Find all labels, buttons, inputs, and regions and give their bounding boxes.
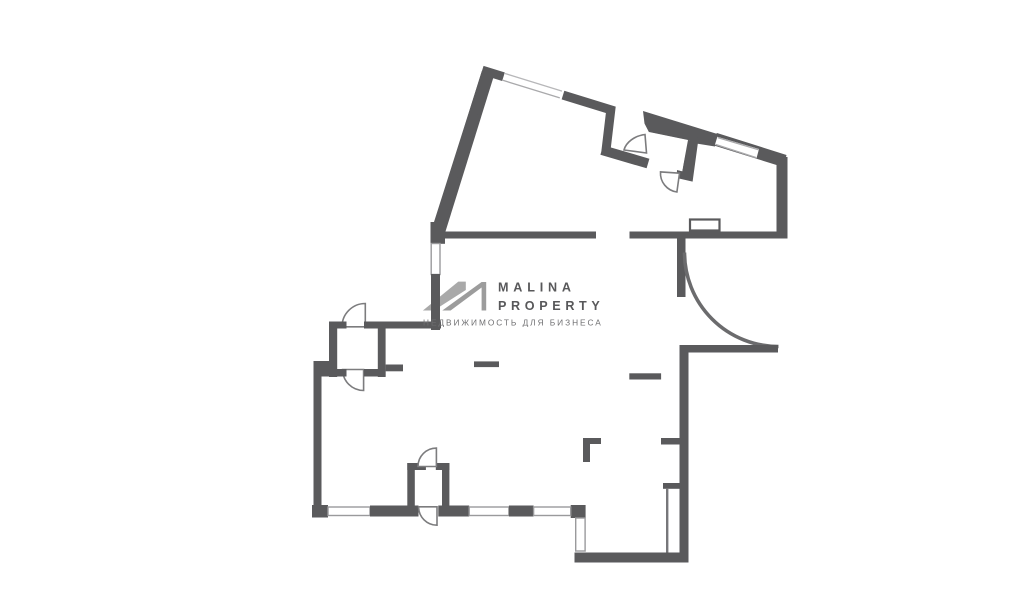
svg-text:MALINA: MALINA [498,281,576,295]
svg-text:НЕДВИЖИМОСТЬ ДЛЯ БИЗНЕСА: НЕДВИЖИМОСТЬ ДЛЯ БИЗНЕСА [423,317,603,327]
svg-text:PROPERTY: PROPERTY [498,299,604,313]
